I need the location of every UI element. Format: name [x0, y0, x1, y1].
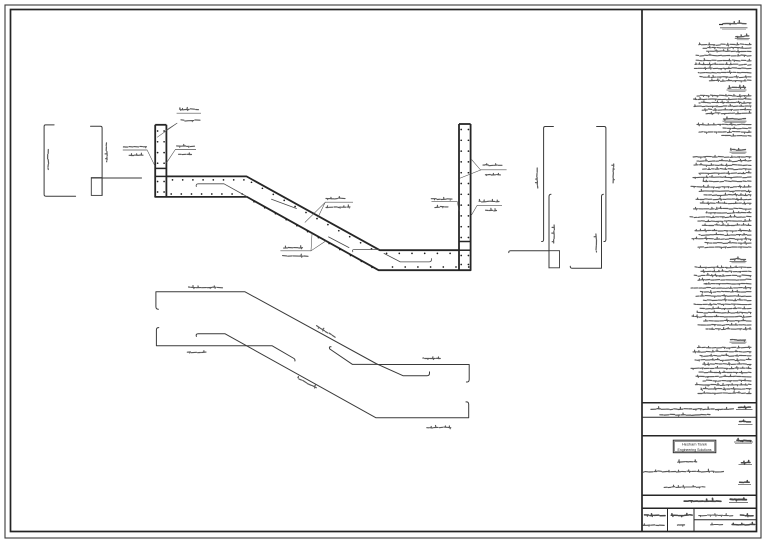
svg-text:Hesham Tarek: Hesham Tarek — [682, 442, 707, 447]
svg-text:Engineering Solutions: Engineering Solutions — [677, 448, 711, 452]
